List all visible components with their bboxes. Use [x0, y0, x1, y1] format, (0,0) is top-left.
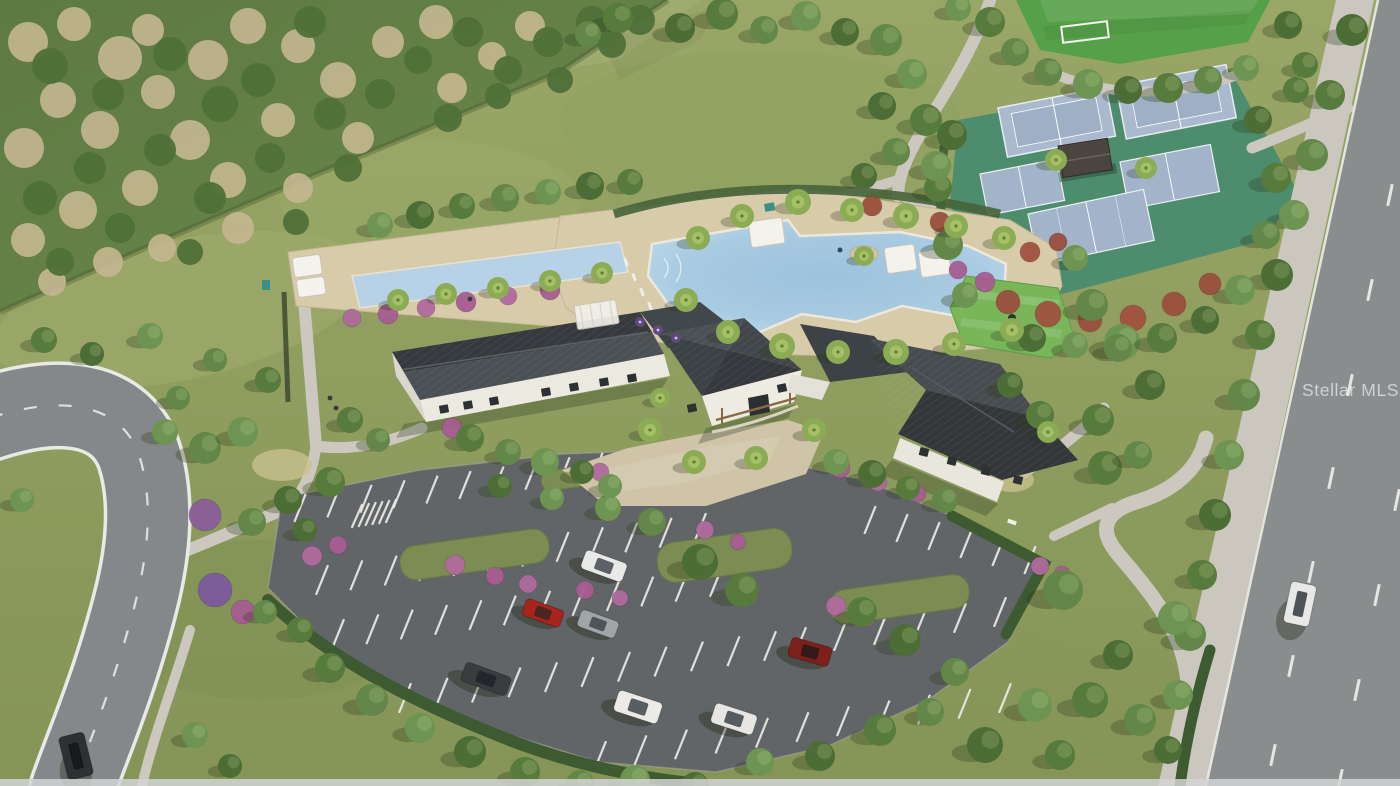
tree-highlight [615, 6, 630, 21]
tree-highlight [147, 326, 160, 339]
tree-highlight [942, 490, 955, 503]
tree-highlight [580, 462, 592, 474]
forest-brush-patch [40, 82, 76, 118]
forest-brush-patch [59, 191, 97, 229]
tree-highlight [285, 489, 299, 503]
tree-highlight [1199, 563, 1214, 578]
window [599, 377, 609, 386]
tree-highlight [833, 452, 846, 465]
tree-highlight [923, 107, 939, 123]
flowering-shrub [996, 290, 1020, 314]
flowering-shrub [189, 499, 221, 531]
tree-highlight [303, 520, 315, 532]
forest-tree [547, 67, 573, 93]
forest-brush-patch [188, 40, 228, 80]
palm-center [894, 350, 897, 353]
palm-center [496, 286, 499, 289]
forest-brush-patch [93, 247, 123, 277]
tree-highlight [927, 701, 941, 715]
palm-center [548, 279, 551, 282]
pool-float-2 [838, 248, 843, 253]
tree-highlight [1072, 248, 1085, 261]
flowering-shrub [456, 292, 476, 312]
tree-highlight [498, 476, 510, 488]
palm-center [648, 428, 651, 431]
window [569, 382, 579, 391]
tree-highlight [545, 182, 558, 195]
forest-tree [194, 182, 226, 214]
tree-highlight [981, 731, 999, 749]
tree-highlight [522, 760, 537, 775]
tree-highlight [649, 511, 663, 525]
forest-brush-patch [230, 8, 266, 44]
scene-canvas [0, 0, 1400, 786]
tree-highlight [265, 370, 278, 383]
tree-highlight [263, 602, 275, 614]
tree-highlight [585, 24, 598, 37]
palm-center [850, 208, 853, 211]
tree-highlight [327, 470, 342, 485]
tree-highlight [20, 490, 32, 502]
palm-center [1002, 236, 1005, 239]
palm-center [954, 224, 957, 227]
palm-center [1054, 158, 1057, 161]
tree-highlight [369, 687, 385, 703]
tree-highlight [376, 430, 388, 442]
palm-center [862, 254, 865, 257]
tree-highlight [1327, 83, 1342, 98]
palm-center [684, 298, 687, 301]
flowering-shrub [329, 536, 347, 554]
tree-highlight [1147, 373, 1162, 388]
forest-tree [105, 213, 135, 243]
tree-highlight [1165, 739, 1179, 753]
flowering-shrub [486, 567, 504, 585]
tree-highlight [249, 511, 263, 525]
forest-tree [434, 104, 462, 132]
person [328, 396, 333, 401]
palm-center [600, 271, 603, 274]
flowering-shrub [576, 581, 594, 599]
tree-highlight [459, 196, 472, 209]
forest-brush-patch [342, 122, 374, 154]
flowering-shrub [1031, 557, 1049, 575]
palm-center [812, 428, 815, 431]
forest-tree [453, 17, 483, 47]
forest-tree [153, 37, 187, 71]
tree-highlight [906, 478, 918, 490]
ornamental-grass-bed [252, 449, 312, 481]
palm-center [1046, 430, 1049, 433]
tree-highlight [162, 422, 175, 435]
tree-highlight [1032, 691, 1049, 708]
tree-highlight [192, 725, 205, 738]
window [541, 387, 551, 396]
cabana-north [748, 217, 785, 247]
person [334, 406, 339, 411]
forest-brush-patch [81, 111, 119, 149]
flowering-shrub [1049, 233, 1067, 251]
tree-highlight [933, 154, 948, 169]
image-bottom-edge [0, 779, 1400, 786]
tree-highlight [417, 204, 431, 218]
forest-brush-patch [222, 212, 254, 244]
palm-center [740, 214, 743, 217]
tree-highlight [542, 451, 556, 465]
flowering-shrub [1020, 242, 1040, 262]
stellar-mls-watermark: Stellar MLS [1302, 380, 1399, 401]
tree-highlight [627, 172, 640, 185]
flowering-shrub [696, 521, 714, 539]
forest-tree [92, 78, 124, 110]
window [463, 400, 473, 409]
forest-brush-patch [122, 170, 158, 206]
palm-center [444, 292, 447, 295]
tree-highlight [1263, 224, 1277, 238]
tree-highlight [1115, 643, 1130, 658]
tree-highlight [1237, 278, 1252, 293]
tree-highlight [502, 187, 516, 201]
forest-tree [314, 98, 346, 130]
palm-center [836, 350, 839, 353]
pool-slide-feature [764, 202, 775, 212]
forest-tree [598, 30, 626, 58]
tree-highlight [962, 285, 975, 298]
tree-highlight [327, 656, 342, 671]
cabana-lap-1 [292, 254, 323, 278]
tree-highlight [1302, 55, 1315, 68]
tree-highlight [1257, 323, 1272, 338]
tree-highlight [902, 627, 918, 643]
forest-tree [365, 79, 395, 109]
palm-center [754, 456, 757, 459]
tree-highlight [1057, 743, 1072, 758]
tree-highlight [347, 410, 360, 423]
tree-highlight [1274, 262, 1290, 278]
window [439, 404, 449, 413]
forest-tree [255, 143, 285, 173]
palm-center [1010, 328, 1013, 331]
forest-tree [144, 134, 176, 166]
tree-highlight [228, 756, 240, 768]
forest-brush-patch [437, 73, 467, 103]
forest-brush-patch [98, 36, 142, 80]
tree-highlight [1243, 58, 1256, 71]
forest-tree [485, 83, 511, 109]
flowering-shrub [862, 196, 882, 216]
tree-highlight [605, 498, 618, 511]
window [627, 373, 637, 382]
flowering-shrub [519, 575, 537, 593]
palm-center [726, 330, 729, 333]
tree-highlight [1255, 109, 1269, 123]
tree-highlight [861, 166, 874, 179]
tree-highlight [1309, 142, 1325, 158]
tree-highlight [377, 215, 390, 228]
tree-highlight [883, 27, 899, 43]
tree-highlight [1349, 17, 1365, 33]
forest-tree [283, 209, 309, 235]
tree-highlight [803, 4, 818, 19]
forest-tree [334, 154, 362, 182]
palm-center [396, 298, 399, 301]
tree-highlight [761, 19, 775, 33]
flowering-shrub [302, 546, 322, 566]
tree-highlight [696, 548, 714, 566]
flowering-shrub [949, 261, 967, 279]
pool-equipment [262, 280, 270, 290]
tree-highlight [1273, 166, 1288, 181]
tree-highlight [467, 739, 483, 755]
forest-tree [404, 46, 432, 74]
forest-brush-patch [372, 26, 404, 58]
tree-highlight [877, 717, 893, 733]
person [468, 297, 473, 302]
flowering-shrub [975, 272, 995, 292]
forest-tree [177, 239, 203, 265]
tree-highlight [719, 1, 735, 17]
tree-highlight [202, 435, 218, 451]
tree-highlight [1293, 80, 1306, 93]
flowering-shrub [1162, 292, 1186, 316]
flowering-shrub [343, 309, 361, 327]
tree-highlight [1029, 327, 1043, 341]
forest-tree [533, 27, 563, 57]
palm-center [1144, 166, 1147, 169]
tree-highlight [893, 141, 907, 155]
palm-center [796, 200, 799, 203]
tree-highlight [1226, 443, 1241, 458]
tree-highlight [869, 463, 883, 477]
tree-highlight [739, 576, 756, 593]
tree-highlight [757, 751, 771, 765]
tree-highlight [1037, 404, 1051, 418]
tree-highlight [1241, 382, 1257, 398]
flowering-shrub [445, 555, 465, 575]
tree-highlight [1137, 707, 1153, 723]
forest-brush-patch [320, 62, 356, 98]
palm-center [692, 460, 695, 463]
tree-highlight [952, 661, 966, 675]
tree-highlight [587, 175, 601, 189]
forest-brush-patch [4, 128, 44, 168]
tree-highlight [1059, 574, 1079, 594]
tree-highlight [987, 10, 1002, 25]
tree-highlight [297, 620, 310, 633]
forest-brush-patch [283, 173, 313, 203]
tree-highlight [1159, 326, 1174, 341]
flowering-shrub [198, 573, 232, 607]
forest-tree [294, 6, 326, 38]
forest-brush-patch [419, 5, 453, 39]
forest-brush-patch [261, 103, 295, 137]
cabana-east-1 [884, 244, 917, 274]
tree-highlight [1125, 79, 1139, 93]
tree-highlight [817, 744, 832, 759]
tree-highlight [240, 420, 255, 435]
forest-tree [202, 86, 238, 122]
tree-highlight [1285, 14, 1299, 28]
tree-highlight [1085, 72, 1100, 87]
flowering-shrub [1035, 301, 1061, 327]
tree-highlight [505, 442, 518, 455]
tree-highlight [176, 388, 188, 400]
tree-highlight [550, 488, 562, 500]
tree-highlight [1012, 41, 1026, 55]
forest-tree [241, 63, 275, 97]
tree-highlight [1172, 604, 1189, 621]
palm-center [696, 236, 699, 239]
tree-highlight [879, 95, 893, 109]
tree-highlight [859, 600, 874, 615]
tree-highlight [1202, 309, 1216, 323]
palm-center [904, 214, 907, 217]
tree-highlight [1135, 444, 1149, 458]
tree-highlight [213, 350, 225, 362]
tree-highlight [1175, 683, 1190, 698]
palm-center [780, 344, 783, 347]
forest-tree [74, 152, 106, 184]
cabana-lap-2 [296, 276, 326, 298]
tree-highlight [1072, 335, 1085, 348]
forest-tree [23, 181, 57, 215]
tree-highlight [90, 344, 102, 356]
tree-highlight [949, 123, 964, 138]
forest-tree [46, 248, 74, 276]
tree-highlight [1115, 337, 1129, 351]
tree-highlight [842, 21, 856, 35]
tree-highlight [1045, 61, 1059, 75]
tree-highlight [1291, 203, 1306, 218]
tree-highlight [909, 62, 924, 77]
tree-highlight [1165, 76, 1180, 91]
tree-highlight [1095, 407, 1111, 423]
tree-highlight [677, 16, 692, 31]
window [489, 396, 499, 405]
tree-highlight [1089, 292, 1105, 308]
tree-highlight [1007, 375, 1020, 388]
tree-highlight [608, 476, 620, 488]
palm-center [952, 342, 955, 345]
tree-highlight [41, 330, 54, 343]
forest-tree [32, 48, 68, 84]
tree-highlight [417, 716, 432, 731]
forest-tree [494, 56, 522, 84]
aerial-rendering: Stellar MLS [0, 0, 1400, 786]
forest-brush-patch [148, 234, 176, 262]
forest-brush-patch [57, 7, 91, 41]
palm-center [658, 396, 661, 399]
forest-brush-patch [170, 120, 210, 160]
forest-brush-patch [141, 75, 175, 109]
flowering-shrub [730, 534, 746, 550]
forest-brush-patch [11, 223, 45, 257]
tree-highlight [1205, 69, 1219, 83]
tree-highlight [467, 427, 481, 441]
tree-highlight [1086, 686, 1104, 704]
flowering-shrub [612, 590, 628, 606]
tree-highlight [1212, 502, 1228, 518]
